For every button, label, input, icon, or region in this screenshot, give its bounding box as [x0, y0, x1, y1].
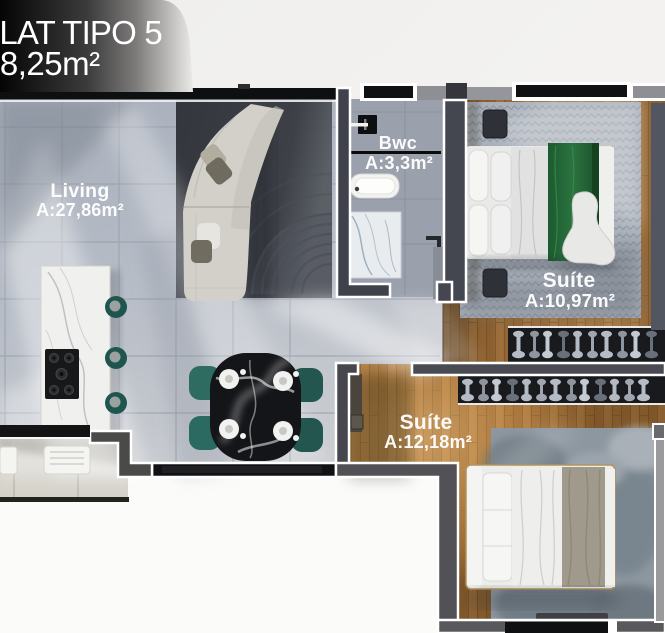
svg-text:A:10,97m²: A:10,97m² [525, 290, 615, 311]
svg-text:A:3,3m²: A:3,3m² [365, 153, 433, 173]
svg-text:A:12,18m²: A:12,18m² [384, 432, 472, 452]
svg-text:Suíte: Suíte [543, 269, 596, 292]
svg-text:Suíte: Suíte [400, 411, 453, 434]
svg-text:58,25m²: 58,25m² [0, 45, 100, 82]
svg-text:Living: Living [50, 180, 109, 202]
svg-text:A:27,86m²: A:27,86m² [36, 200, 124, 220]
svg-text:Bwc: Bwc [379, 133, 418, 153]
